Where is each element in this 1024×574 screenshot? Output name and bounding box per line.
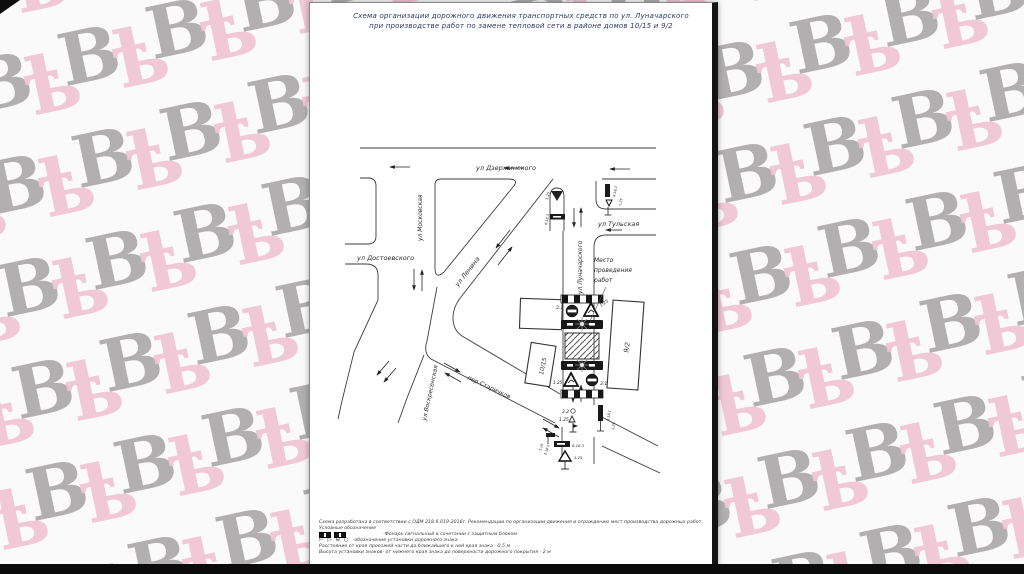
roadworks-sign — [564, 373, 578, 386]
signs-bottom-intersection: 3.2 1.25 6.18.1 1.25 1.25 6.18.1 6.18.3 … — [538, 405, 616, 469]
sign-label-detour: 6.18.3 — [544, 214, 550, 225]
photo-bottom-edge — [0, 564, 1024, 574]
sign-position-triangle — [569, 416, 575, 422]
work-area-hatched — [565, 333, 599, 359]
traffic-arrow — [496, 230, 510, 248]
sign-label-detour: 6.18.1 — [606, 410, 612, 421]
sign-label-detour: 6.18.3 — [572, 443, 585, 448]
sign-label-roadworks: 1.25 — [538, 443, 544, 451]
traffic-arrow — [384, 368, 396, 382]
post-flag — [573, 424, 578, 428]
traffic-arrow — [498, 247, 512, 265]
street-label-lunacharskogo: ул Луначарского — [577, 240, 584, 295]
sign-label-roadworks: 1.25 — [559, 417, 569, 423]
street-label-dostoevskogo: ул Достоевского — [356, 254, 414, 262]
sign-label-roadworks: 1.25 — [574, 455, 583, 460]
detour-sign-plate — [598, 405, 603, 421]
traffic-arrow — [444, 363, 460, 372]
sign-label-no-entry: 3.1 — [600, 381, 607, 387]
document-page: Схема организации дорожного движения тра… — [309, 2, 718, 566]
detour-arrow — [557, 443, 565, 445]
legend-sign-text: -обозначение установки дорожного знака — [353, 538, 458, 544]
road-starichkov-south-east — [602, 446, 660, 473]
sign-label-no-entry: 3.1 — [556, 305, 563, 311]
roadworks-sign-island — [551, 191, 563, 201]
sign-position-circle — [571, 409, 575, 413]
road-dostoevskogo-voskresenskaya-west — [338, 264, 378, 419]
traffic-arrow — [377, 361, 389, 375]
block-dash — [589, 364, 595, 367]
road-voskresenskaya-east — [398, 355, 424, 423]
work-site-line1: Место — [594, 257, 614, 264]
sign-label-no-vehicles: 3.2 — [562, 409, 569, 415]
work-site-line3: работ — [593, 277, 613, 284]
work-site-line2: проведения — [594, 267, 632, 274]
road-dzerzhinskogo-south-west — [345, 178, 376, 244]
street-label-tulskaya: ул Тульская — [597, 220, 639, 228]
signal-lamp-north — [575, 317, 589, 331]
traffic-scheme-map: 10/15 9/2 3.1 1.25 — [310, 3, 712, 565]
detour-sign-plate — [605, 184, 610, 197]
detour-sign-plate — [546, 433, 555, 437]
sign-label-detour: 6.18.1 — [543, 444, 550, 455]
street-label-starichkov: пер Старичков — [466, 374, 512, 400]
no-entry-bar — [588, 379, 597, 382]
sign-label-roadworks: 1.25 — [553, 380, 563, 385]
legend-standard-note: Схема разработана в соответствии с ОДМ 2… — [319, 520, 704, 526]
signal-lamp-south — [575, 358, 589, 372]
roadworks-sign-small — [559, 451, 571, 461]
sign-post-symbols: ⊢ ▷ ⊖ ○ — [319, 538, 350, 544]
barrier-fence-north — [561, 295, 603, 303]
building-unlabeled — [519, 298, 562, 329]
traffic-arrow — [445, 373, 461, 382]
detour-arrow — [553, 216, 561, 218]
barrier-fence-south — [561, 390, 603, 398]
block-dash — [567, 364, 573, 367]
work-zone: 3.1 1.25 — [553, 295, 609, 398]
legend-height-note: Высота установки знаков- от нижнего края… — [319, 550, 704, 556]
roadworks-sign-small — [606, 200, 612, 206]
street-label-lenina: ул Ленина — [453, 255, 482, 289]
street-label-dzerzhinskogo: ул Дзержинского — [475, 164, 536, 172]
traffic-arrow — [543, 419, 559, 428]
block-dash — [567, 323, 573, 326]
sign-label-detour: 6.18.2 — [612, 186, 618, 197]
sign-label-roadworks: 1.25 — [618, 198, 623, 206]
block-dash — [589, 323, 595, 326]
no-entry-bar — [568, 310, 577, 313]
street-label-moskovskaya: ул Московская — [417, 194, 424, 242]
street-label-voskresenskaya: ул Воскресенская — [421, 364, 440, 422]
sign-label-roadworks: 1.25 — [611, 422, 616, 430]
roadworks-sign — [584, 303, 598, 316]
legend: Схема разработана в соответствии с ОДМ 2… — [319, 520, 704, 556]
